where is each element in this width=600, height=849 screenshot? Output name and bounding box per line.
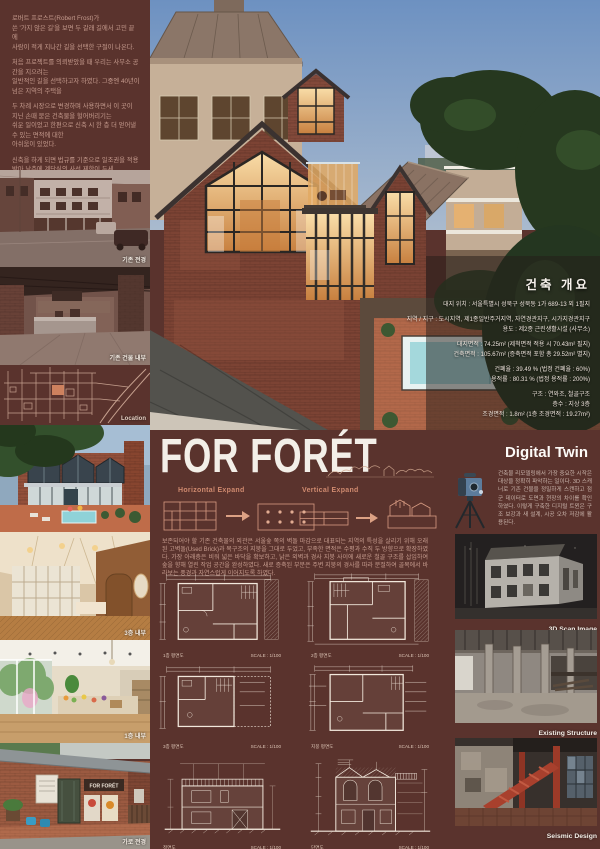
hero-photo: 건축 개요 대지 위치 : 서울특별시 성북구 성북동 1가 689-13 외 … (150, 0, 600, 430)
3d-scanner-icon (448, 470, 492, 532)
plan-scale: SCALE : 1/100 (251, 653, 281, 659)
photo-caption: 1층 내부 (124, 731, 146, 740)
photo-caption: 기존 전경 (122, 255, 146, 264)
location-map: Location (0, 365, 150, 425)
plan-caption: 3층 평면도 (163, 744, 184, 750)
elevations-row: 정면도SCALE : 1/100 (157, 754, 435, 849)
overview-line: 대지 위치 : 서울특별시 성북구 성북동 1가 689-13 외 1필지 (355, 300, 590, 310)
floor-plan-1f-drawing (157, 572, 287, 647)
left-photo-column: 로버트 프로스트(Robert Frost)가 쓴 '가지 않은 길'을 보면 … (0, 0, 150, 849)
arrow-icon (226, 511, 378, 523)
overview-line: 용도 : 제2종 근린생활시설 (사무소) (355, 325, 590, 335)
photo-caption: 가로 전경 (122, 837, 146, 846)
photo-interior-1f: 1층 내부 (0, 640, 150, 743)
digital-twin-column: Digital Twin 건축물 리모델링에서 가장 중요한 시작은 대상을 정… (440, 430, 600, 849)
floor-plan-2f: 2층 평면도SCALE : 1/100 (305, 572, 435, 659)
plan-scale: SCALE : 1/100 (251, 845, 281, 849)
storefront-sign-text: FOR FORÉT (90, 782, 119, 790)
map-caption: Location (121, 416, 146, 422)
overview-line: 지역 / 지구 : 도시지역, 제1종일반주거지역, 자연경관지구, 시가지경관… (355, 315, 590, 325)
plan-caption: 지붕 평면도 (311, 744, 333, 750)
overview-title: 건축 개요 (355, 274, 590, 293)
interior-1f-image (0, 640, 150, 743)
photo-existing-interior: 기존 건물 내부 (0, 267, 150, 365)
overview-line: 용적률 : 80.31 % (법정 용적률 : 200%) (355, 375, 590, 385)
plan-caption: 2층 평면도 (311, 653, 332, 659)
digital-twin-title: Digital Twin (505, 444, 588, 461)
poster-root: 로버트 프로스트(Robert Frost)가 쓴 '가지 않은 길'을 보면 … (0, 0, 600, 849)
existing-structure-caption: Existing Structure (455, 730, 597, 737)
photo-caption: 기존 건물 내부 (110, 353, 146, 362)
seismic-design-caption: Seismic Design (455, 833, 597, 840)
elevation-caption: 단면도 (311, 845, 324, 849)
photo-storefront: FOR FORÉT 가로 전경 (0, 743, 150, 849)
overview-line: 건폐율 : 39.49 % (법정 건폐율 : 60%) (355, 365, 590, 375)
vertical-expand-label: Vertical Expand (302, 487, 359, 494)
existing-interior-image (0, 267, 150, 365)
storefront-image: FOR FORÉT (0, 743, 150, 849)
plan-caption: 1층 평면도 (163, 653, 184, 659)
overview-line: 조경면적 : 1.8m² (1층 조경면적 : 19.27m²) (355, 410, 590, 420)
3d-scan-image (455, 534, 597, 619)
existing-exterior-image (0, 170, 150, 267)
digital-twin-intro: 건축물 리모델링에서 가장 중요한 시작은 대상을 정확히 파악하는 일이다. … (448, 470, 592, 534)
floor-plan-3f: 3층 평면도SCALE : 1/100 (157, 663, 287, 750)
project-overview: 건축 개요 대지 위치 : 서울특별시 성북구 성북동 1가 689-13 외 … (355, 274, 590, 420)
floor-plan-3f-drawing (157, 663, 287, 738)
new-exterior-image (0, 425, 150, 532)
plan-scale: SCALE : 1/100 (251, 744, 281, 750)
floor-plan-2f-drawing (305, 572, 435, 647)
floor-plans-grid: 1층 평면도SCALE : 1/100 (157, 572, 435, 750)
elevation-front: 정면도SCALE : 1/100 (157, 754, 287, 849)
existing-structure-image (455, 630, 597, 723)
intro-paragraph: 두 차례 시장으로 변경하며 사용하면서 이 곳이 지닌 손때 묻은 건축물을 … (12, 102, 140, 150)
overview-line: 층수 : 지상 3층 (355, 400, 590, 410)
plan-scale: SCALE : 1/100 (399, 653, 429, 659)
treeline-sketch-icon (326, 456, 436, 480)
plan-scale: SCALE : 1/100 (399, 744, 429, 750)
intro-paragraph: 처음 프로젝트를 의뢰받았을 때 우리는 사무소 공간을 지으려는 일반적인 길… (12, 58, 140, 96)
floor-plan-1f: 1층 평면도SCALE : 1/100 (157, 572, 287, 659)
existing-structure-figure: Existing Structure (455, 630, 597, 737)
expand-diagrams (150, 496, 440, 536)
floor-plan-roof: 지붕 평면도SCALE : 1/100 (305, 663, 435, 750)
intro-text-block: 로버트 프로스트(Robert Frost)가 쓴 '가지 않은 길'을 보면 … (0, 0, 150, 170)
floor-plan-roof-drawing (305, 663, 435, 738)
interior-3f-image (0, 532, 150, 640)
seismic-design-image (455, 738, 597, 826)
center-column: FOR FORÉT Horizontal Expand Vertical Exp… (150, 430, 440, 849)
overview-line: 건축면적 : 105.67m² (증축면적 포함 총 29.52m² 별지) (355, 350, 590, 360)
elevation-section: 단면도SCALE : 1/100 (305, 754, 435, 849)
photo-new-exterior (0, 425, 150, 532)
digital-twin-paragraph: 건축물 리모델링에서 가장 중요한 시작은 대상을 정확히 파악하는 일이다. … (498, 470, 592, 534)
scan-figure: 3D Scan Image (455, 534, 597, 633)
elevation-caption: 정면도 (163, 845, 176, 849)
overview-line: 대지면적 : 74.25m² (제척면적 적용 시 70.43m² 필지) (355, 340, 590, 350)
horizontal-expand-label: Horizontal Expand (178, 487, 245, 494)
seismic-design-figure: Seismic Design (455, 738, 597, 840)
photo-existing-exterior: 기존 전경 (0, 170, 150, 267)
elevation-section-drawing (305, 754, 435, 839)
intro-paragraph: 로버트 프로스트(Robert Frost)가 쓴 '가지 않은 길'을 보면 … (12, 14, 140, 52)
photo-interior-3f: 3층 내부 (0, 532, 150, 640)
elevation-front-drawing (157, 754, 287, 839)
overview-line: 구조 : 연와조, 철골구조 (355, 390, 590, 400)
photo-caption: 3층 내부 (124, 628, 146, 637)
plan-scale: SCALE : 1/100 (399, 845, 429, 849)
